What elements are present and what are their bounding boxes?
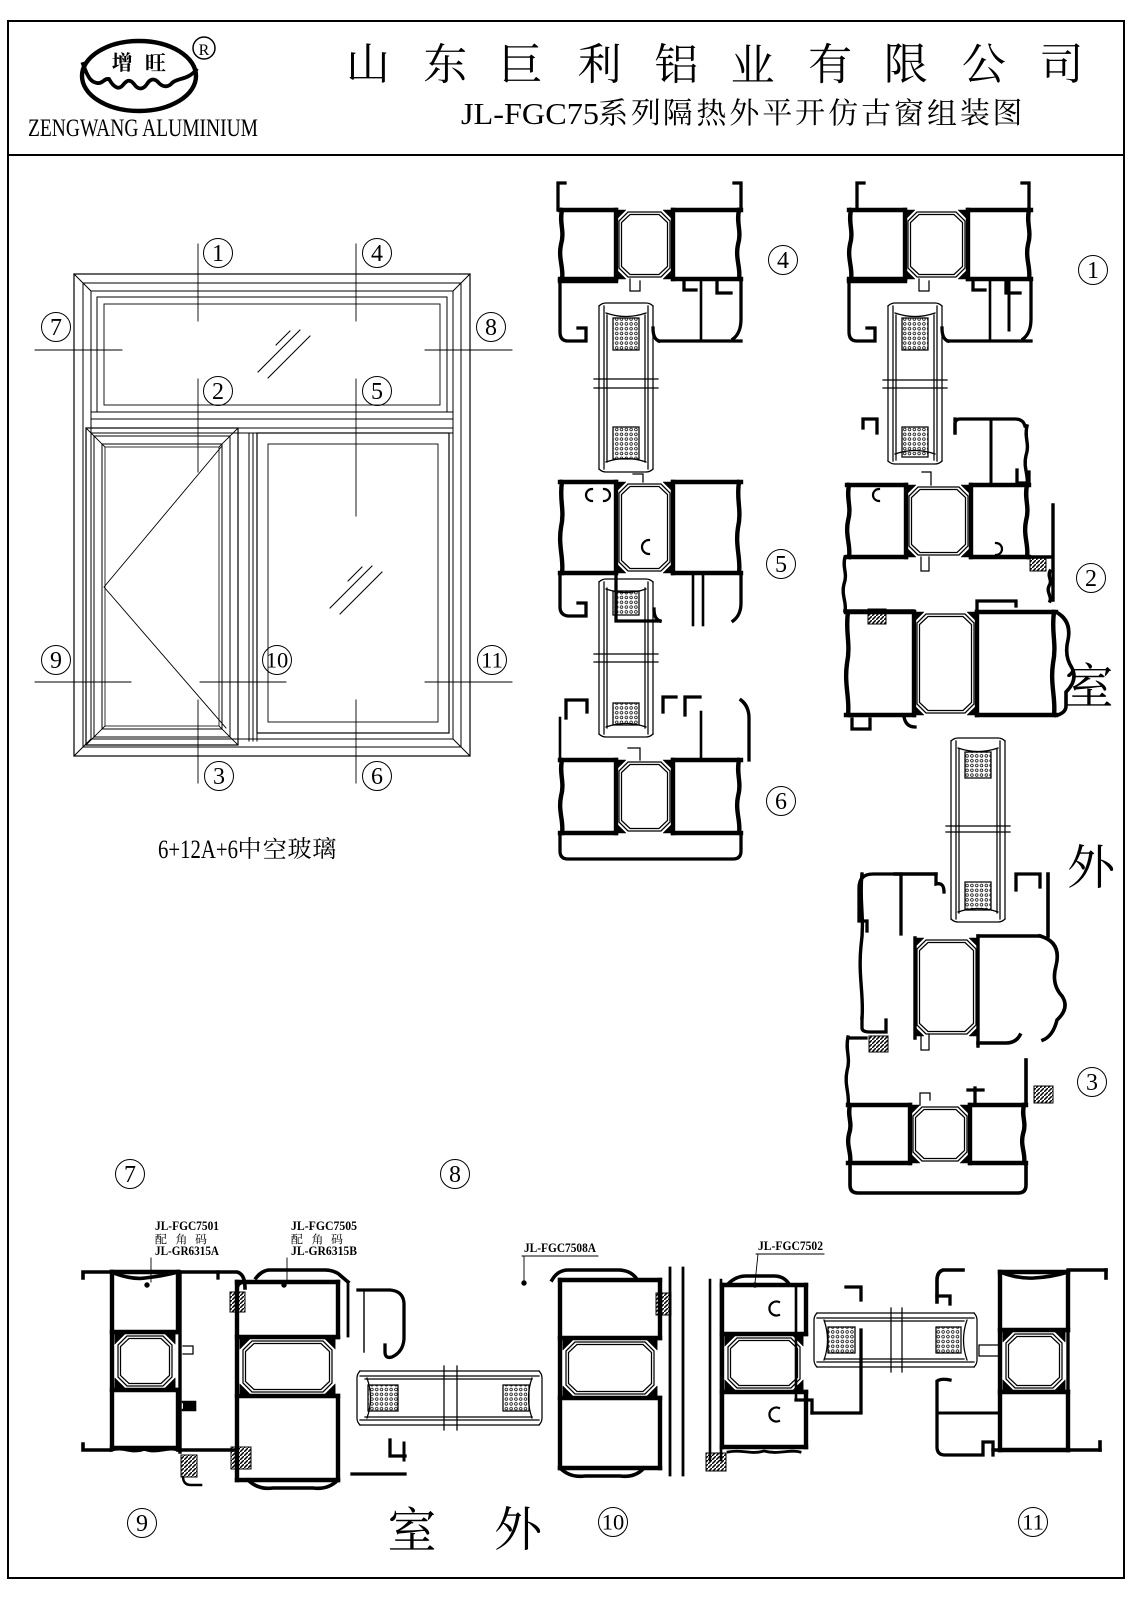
svg-text:JL-FGC7502: JL-FGC7502 (758, 1239, 823, 1253)
svg-text:JL-GR6315B: JL-GR6315B (291, 1244, 357, 1258)
svg-text:1: 1 (1087, 258, 1099, 284)
svg-text:JL-FGC7501: JL-FGC7501 (155, 1219, 219, 1233)
svg-text:6+12A+6: 6+12A+6 (158, 835, 238, 864)
svg-text:6: 6 (371, 764, 383, 790)
svg-text:10: 10 (602, 1510, 625, 1535)
svg-text:2: 2 (1085, 566, 1097, 592)
svg-text:2: 2 (212, 379, 224, 405)
svg-text:JL-FGC7505: JL-FGC7505 (291, 1219, 357, 1233)
svg-text:R: R (199, 42, 210, 59)
svg-text:9: 9 (136, 1511, 148, 1537)
svg-text:3: 3 (213, 764, 225, 790)
svg-text:11: 11 (1022, 1510, 1044, 1535)
svg-text:7: 7 (50, 315, 62, 341)
svg-text:8: 8 (449, 1162, 461, 1188)
svg-text:5: 5 (371, 379, 383, 405)
svg-text:3: 3 (1086, 1070, 1098, 1096)
svg-text:5: 5 (775, 552, 787, 578)
svg-text:7: 7 (124, 1162, 136, 1188)
svg-text:6: 6 (775, 789, 787, 815)
svg-text:4: 4 (371, 241, 383, 267)
svg-text:10: 10 (266, 648, 289, 673)
svg-text:JL-GR6315A: JL-GR6315A (155, 1244, 219, 1258)
svg-text:1: 1 (212, 241, 224, 267)
svg-text:4: 4 (777, 248, 789, 274)
svg-text:11: 11 (481, 648, 503, 673)
svg-text:8: 8 (485, 315, 497, 341)
svg-text:JL-FGC75: JL-FGC75 (461, 96, 599, 131)
svg-text:9: 9 (50, 648, 62, 674)
svg-text:JL-FGC7508A: JL-FGC7508A (524, 1241, 596, 1255)
svg-text:ZENGWANG ALUMINIUM: ZENGWANG ALUMINIUM (28, 115, 258, 142)
